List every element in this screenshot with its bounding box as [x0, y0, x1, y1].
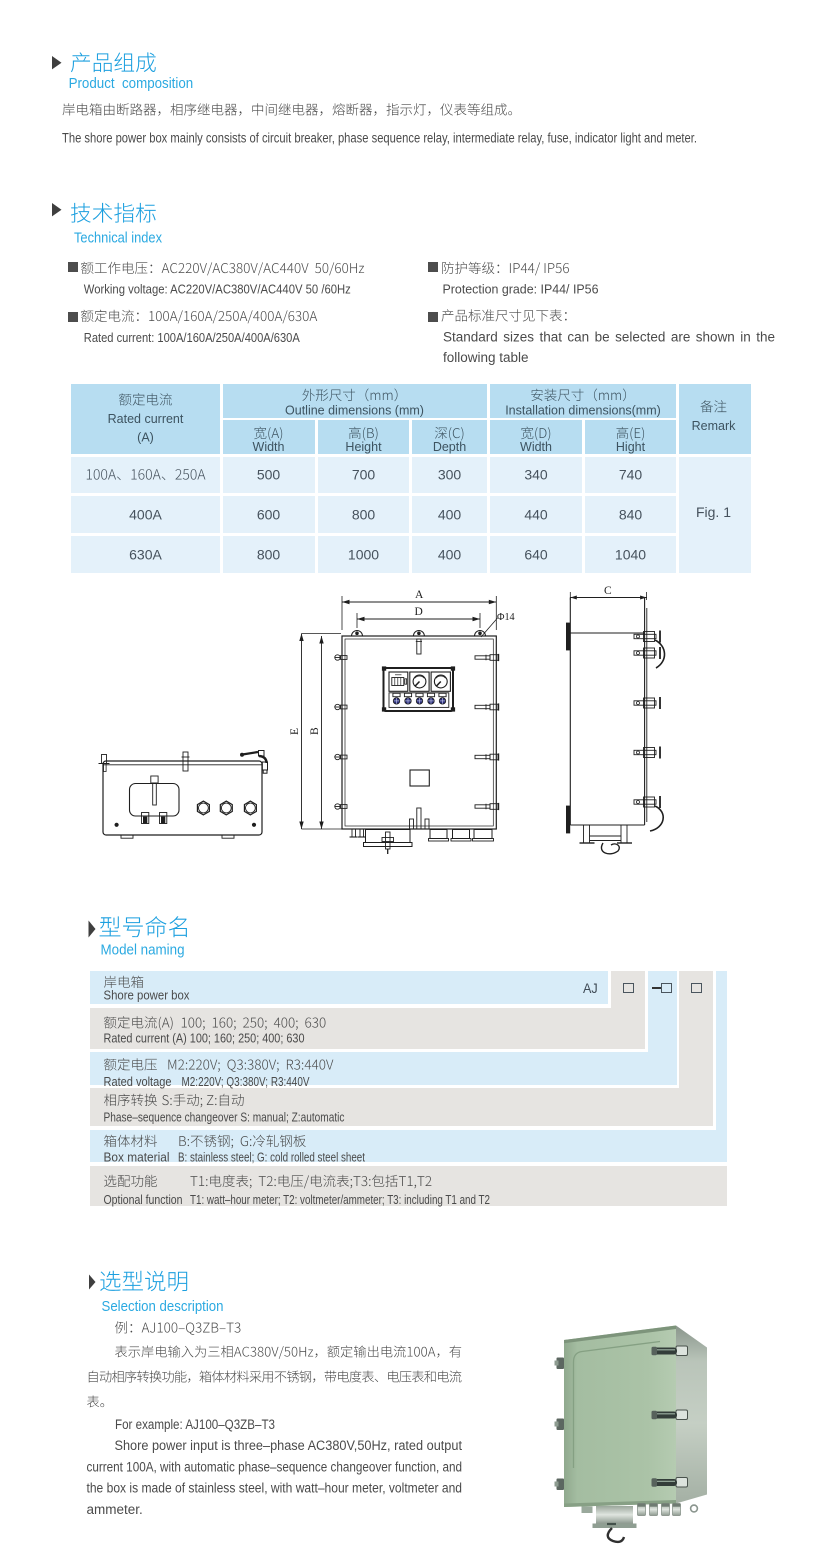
svg-text:Selection description: Selection description [102, 1298, 224, 1315]
svg-text:630A: 630A [129, 547, 162, 563]
svg-text:Rated current (A) 100; 160; 25: Rated current (A) 100; 160; 250; 400; 63… [104, 1031, 305, 1046]
svg-text:can: can [567, 330, 589, 345]
svg-text:Remark: Remark [692, 419, 737, 433]
svg-text:600: 600 [257, 507, 281, 523]
svg-text:selected: selected [615, 330, 665, 345]
svg-text:AJ: AJ [583, 980, 598, 996]
svg-text:Rated current: Rated current [108, 412, 184, 426]
svg-text:1000: 1000 [348, 547, 379, 563]
svg-text:400: 400 [438, 547, 462, 563]
svg-text:1040: 1040 [615, 547, 646, 563]
svg-text:D: D [415, 606, 423, 618]
svg-text:400: 400 [438, 507, 462, 523]
svg-text:Depth: Depth [433, 440, 466, 454]
svg-text:Rated current: 100A/160A/250A/: Rated current: 100A/160A/250A/400A/630A [84, 330, 300, 345]
svg-text:Technical index: Technical index [74, 230, 162, 247]
svg-text:Installation dimensions(mm): Installation dimensions(mm) [505, 404, 661, 418]
svg-text:the: the [756, 330, 775, 345]
svg-text:340: 340 [524, 467, 548, 483]
svg-text:Phase–sequence changeover S:: Phase–sequence changeover S: manual; Z:a… [104, 1110, 345, 1125]
svg-text:Rated voltage: Rated voltage [104, 1074, 172, 1089]
svg-text:Working voltage: AC220V/AC380V: Working voltage: AC220V/AC380V/AC440V 50… [84, 282, 351, 297]
svg-text:following table: following table [443, 350, 529, 365]
svg-text:For example: AJ100–Q3ZB–T3: For example: AJ100–Q3ZB–T3 [115, 1417, 275, 1432]
svg-text:are: are [671, 330, 691, 345]
svg-text:B: B [309, 727, 321, 735]
svg-text:C: C [604, 585, 612, 597]
svg-text:Hight: Hight [616, 440, 646, 454]
svg-text:E: E [289, 728, 301, 735]
svg-text:400A: 400A [129, 507, 162, 523]
svg-text:640: 640 [524, 547, 548, 563]
svg-text:300: 300 [438, 467, 462, 483]
svg-text:Standard: Standard [443, 330, 498, 345]
svg-text:800: 800 [257, 547, 281, 563]
svg-text:T1: watt–hour meter; T2: voltm: T1: watt–hour meter; T2: voltmeter/ammet… [190, 1192, 490, 1207]
svg-text:M2:220V; Q3:380V; R3:440V: M2:220V; Q3:380V; R3:440V [182, 1074, 310, 1089]
svg-text:500: 500 [257, 467, 281, 483]
svg-text:current 100A, with automatic p: current 100A, with automatic phase–seque… [87, 1459, 463, 1474]
svg-text:Width: Width [520, 440, 552, 454]
svg-text:Box material: Box material [104, 1150, 170, 1165]
svg-text:800: 800 [352, 507, 376, 523]
svg-text:ammeter.: ammeter. [87, 1502, 143, 1517]
svg-text:Product composition: Product composition [69, 75, 194, 92]
svg-text:Optional function: Optional function [104, 1192, 183, 1207]
svg-text:B: stainless steel; G: cold ro: B: stainless steel; G: cold rolled steel… [178, 1150, 365, 1165]
svg-text:(A): (A) [137, 431, 154, 445]
svg-text:440: 440 [524, 507, 548, 523]
svg-text:that: that [539, 330, 562, 345]
svg-text:Φ14: Φ14 [497, 612, 515, 623]
svg-text:Width: Width [253, 440, 285, 454]
svg-text:Height: Height [345, 440, 382, 454]
svg-text:in: in [740, 330, 751, 345]
svg-text:shown: shown [696, 330, 735, 345]
svg-text:700: 700 [352, 467, 376, 483]
svg-text:A: A [415, 589, 424, 601]
svg-text:Protection grade: IP44/ IP56: Protection grade: IP44/ IP56 [443, 282, 599, 297]
svg-text:740: 740 [619, 467, 643, 483]
svg-text:be: be [595, 330, 610, 345]
svg-text:840: 840 [619, 507, 643, 523]
svg-text:The shore power box mainly con: The shore power box mainly consists of c… [62, 131, 697, 146]
svg-text:Model naming: Model naming [101, 942, 185, 959]
svg-text:the box is made of stainless s: the box is made of stainless steel, with… [87, 1481, 463, 1496]
svg-text:Shore power input is three–pha: Shore power input is three–phase AC380V,… [115, 1438, 463, 1453]
svg-text:sizes: sizes [503, 330, 534, 345]
svg-text:Shore power box: Shore power box [104, 988, 191, 1003]
svg-text:Fig. 1: Fig. 1 [696, 504, 731, 520]
svg-text:Outline dimensions (mm): Outline dimensions (mm) [285, 404, 424, 418]
